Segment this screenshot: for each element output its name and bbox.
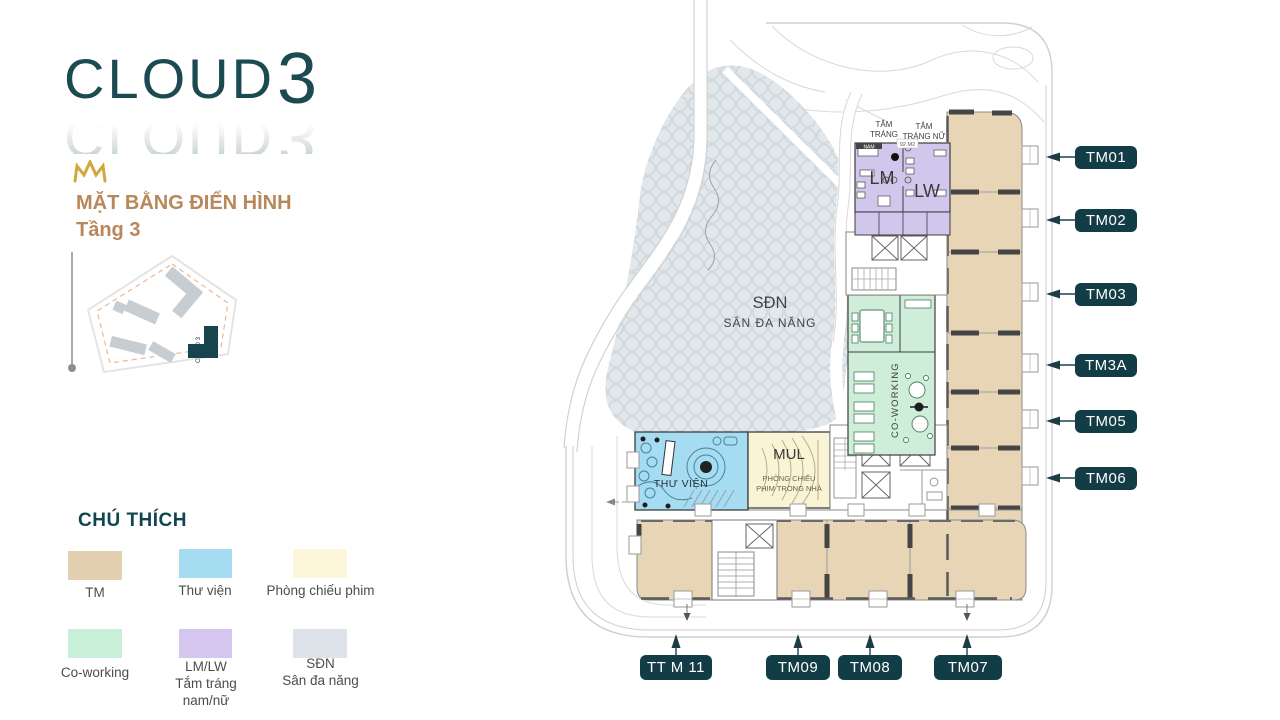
unit-badge-tm06: TM06 [1075, 467, 1137, 490]
unit-badge-tm05: TM05 [1075, 410, 1137, 433]
shower-female-sign1: TẮM [916, 122, 933, 131]
shower-female-code: LW [914, 181, 940, 201]
cinema-code: MUL [773, 446, 805, 463]
shower-male-sign3: NAM [863, 145, 874, 151]
unit-badge-tm08: TM08 [838, 655, 902, 680]
unit-badge-tm01: TM01 [1075, 146, 1137, 169]
cinema-area: MUL PHÒNG CHIẾU PHIM TRONG NHÀ [748, 432, 830, 508]
shower-area: NAM 92 M2 LM LW [855, 139, 950, 235]
unit-badge-tm3a: TM3A [1075, 354, 1137, 377]
shower-male-sign1: TẮM [876, 120, 893, 129]
core-upper [846, 232, 947, 295]
shower-male-sign2: TRÁNG [870, 130, 898, 139]
unit-badge-ttm11: TT M 11 [640, 655, 712, 680]
sdn-name: SÂN ĐA NĂNG [723, 315, 816, 330]
unit-badge-tm07: TM07 [934, 655, 1002, 680]
unit-badge-tm03: TM03 [1075, 283, 1137, 306]
unit-badge-tm09: TM09 [766, 655, 830, 680]
stair-core-bottom [712, 520, 777, 600]
unit-badge-tm02: TM02 [1075, 209, 1137, 232]
sdn-area [605, 65, 851, 441]
shower-male-code: LM [869, 168, 894, 188]
shower-area-size: 92 M2 [900, 142, 915, 148]
sdn-abbr: SĐN [753, 294, 788, 312]
coworking-label: CO-WORKING [890, 362, 901, 438]
library-label: THƯ VIỆN [654, 477, 708, 490]
cinema-name-1: PHÒNG CHIẾU [763, 473, 816, 483]
cinema-name-2: PHIM TRONG NHÀ [756, 484, 822, 493]
library-area: THƯ VIỆN [635, 432, 748, 510]
coworking-area: CO-WORKING [848, 295, 935, 455]
shower-female-sign2: TRÁNG NỮ [903, 132, 946, 141]
